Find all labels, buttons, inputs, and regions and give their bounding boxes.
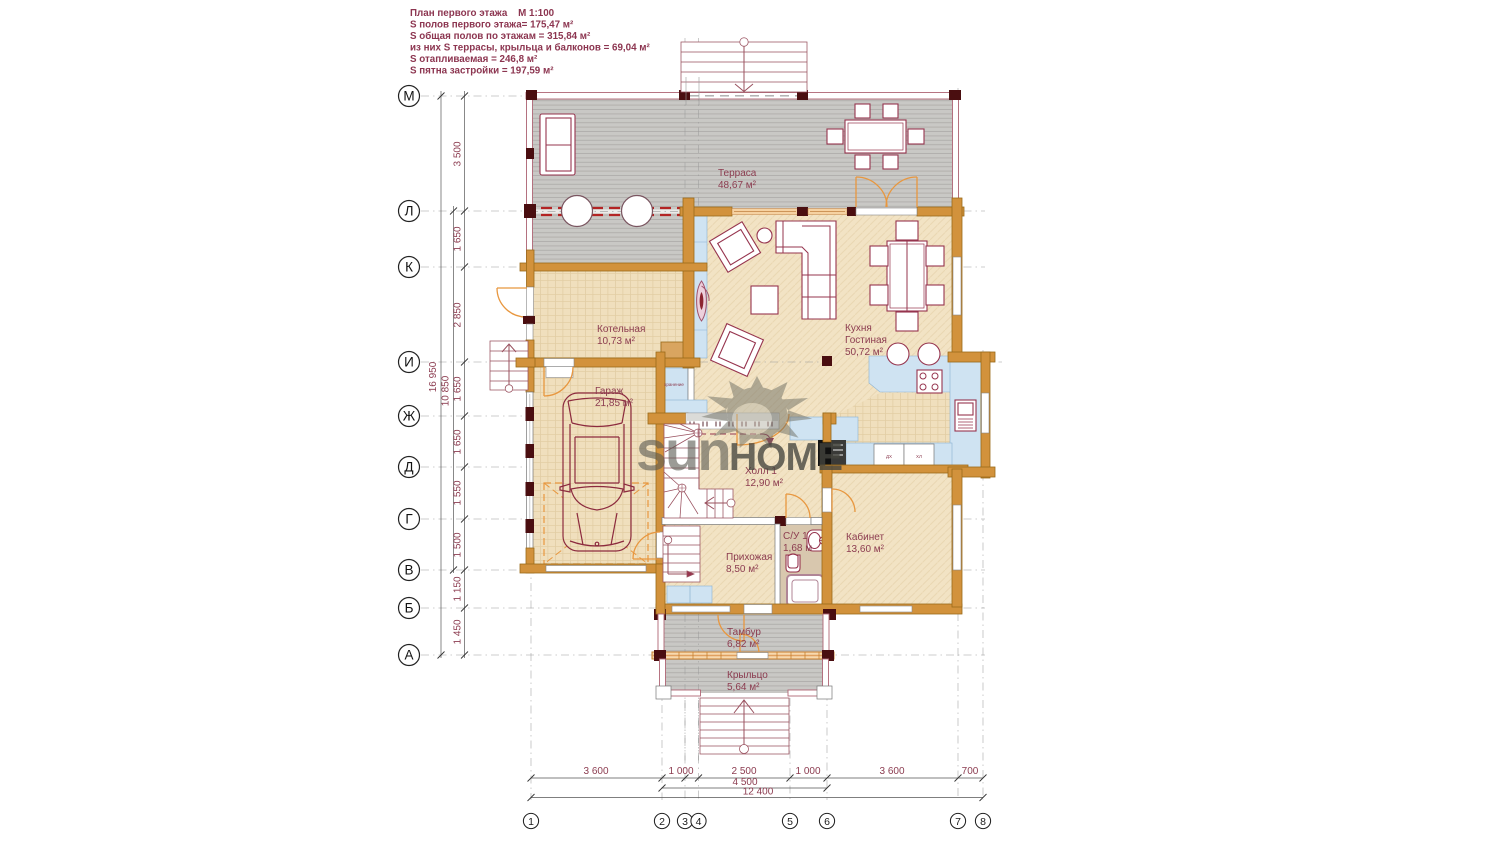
svg-text:4: 4	[696, 816, 702, 828]
svg-text:10,73 м²: 10,73 м²	[597, 336, 636, 347]
svg-text:ДХ: ДХ	[886, 454, 892, 459]
svg-text:Терраса: Терраса	[718, 168, 757, 179]
svg-text:ХЛ: ХЛ	[916, 454, 922, 459]
svg-text:10 850: 10 850	[441, 375, 452, 406]
svg-text:3 600: 3 600	[879, 766, 904, 777]
svg-text:И: И	[404, 355, 414, 370]
svg-text:S отапливаемая = 246,8 м²: S отапливаемая = 246,8 м²	[410, 54, 538, 65]
svg-text:S полов первого этажа= 175,47: S полов первого этажа= 175,47 м²	[410, 20, 574, 31]
svg-text:1,68 м: 1,68 м	[783, 543, 812, 554]
svg-text:Г: Г	[405, 512, 413, 527]
svg-text:Л: Л	[405, 204, 414, 219]
svg-text:5: 5	[787, 816, 793, 828]
svg-text:700: 700	[962, 766, 979, 777]
svg-text:1 650: 1 650	[453, 226, 464, 251]
svg-text:sun: sun	[636, 419, 730, 482]
svg-text:50,72 м²: 50,72 м²	[845, 347, 884, 358]
svg-text:1 550: 1 550	[453, 480, 464, 505]
svg-text:В: В	[404, 563, 413, 578]
svg-text:6,82 м²: 6,82 м²	[727, 639, 760, 650]
svg-text:Прихожая: Прихожая	[726, 552, 772, 563]
svg-text:Тамбур: Тамбур	[727, 626, 761, 638]
svg-text:1 000: 1 000	[668, 766, 693, 777]
svg-text:1 650: 1 650	[453, 429, 464, 454]
svg-text:7: 7	[955, 816, 961, 828]
svg-text:Гараж: Гараж	[595, 386, 624, 397]
svg-text:3 600: 3 600	[583, 766, 608, 777]
svg-text:Кухня: Кухня	[845, 323, 872, 334]
svg-text:из них S террасы, крыльца и ба: из них S террасы, крыльца и балконов = 6…	[410, 43, 651, 54]
svg-text:16 950: 16 950	[428, 361, 439, 392]
svg-text:12 400: 12 400	[743, 787, 774, 798]
svg-text:13,60 м²: 13,60 м²	[846, 544, 885, 555]
svg-text:8,50 м²: 8,50 м²	[726, 564, 759, 575]
svg-text:Котельная: Котельная	[597, 324, 645, 335]
svg-text:Крыльцо: Крыльцо	[727, 670, 768, 681]
svg-text:HOME: HOME	[729, 436, 842, 479]
svg-text:К: К	[405, 260, 413, 275]
svg-text:Ж: Ж	[403, 409, 416, 424]
svg-text:Д: Д	[404, 460, 413, 475]
svg-text:48,67 м²: 48,67 м²	[718, 180, 757, 191]
svg-text:3 500: 3 500	[453, 141, 464, 166]
svg-text:S общая полов по этажам = 315,: S общая полов по этажам = 315,84 м²	[410, 31, 591, 42]
svg-text:хранение: хранение	[664, 382, 684, 387]
svg-text:М: М	[403, 89, 414, 104]
svg-text:1 450: 1 450	[453, 619, 464, 644]
svg-text:3: 3	[682, 816, 688, 828]
svg-text:1: 1	[528, 816, 534, 828]
svg-text:Б: Б	[405, 601, 414, 616]
svg-text:1 500: 1 500	[453, 532, 464, 557]
svg-text:5,64 м²: 5,64 м²	[727, 682, 760, 693]
svg-text:S пятна застройки = 197,59 м²: S пятна застройки = 197,59 м²	[410, 66, 554, 77]
svg-text:12,90 м²: 12,90 м²	[745, 478, 784, 489]
svg-text:21,85 м²: 21,85 м²	[595, 398, 634, 409]
svg-text:8: 8	[980, 816, 986, 828]
svg-text:А: А	[404, 648, 413, 663]
svg-text:С/У 1: С/У 1	[783, 531, 808, 542]
svg-text:6: 6	[824, 816, 830, 828]
svg-text:2: 2	[659, 816, 665, 828]
svg-text:1 150: 1 150	[453, 576, 464, 601]
svg-text:Кабинет: Кабинет	[846, 531, 884, 543]
svg-text:2 850: 2 850	[453, 302, 464, 327]
svg-text:1 000: 1 000	[795, 766, 820, 777]
svg-text:1 650: 1 650	[453, 376, 464, 401]
svg-text:Гостиная: Гостиная	[845, 335, 887, 346]
svg-text:План первого этажа М 1:100: План первого этажа М 1:100	[410, 8, 555, 19]
svg-text:2 500: 2 500	[731, 766, 756, 777]
